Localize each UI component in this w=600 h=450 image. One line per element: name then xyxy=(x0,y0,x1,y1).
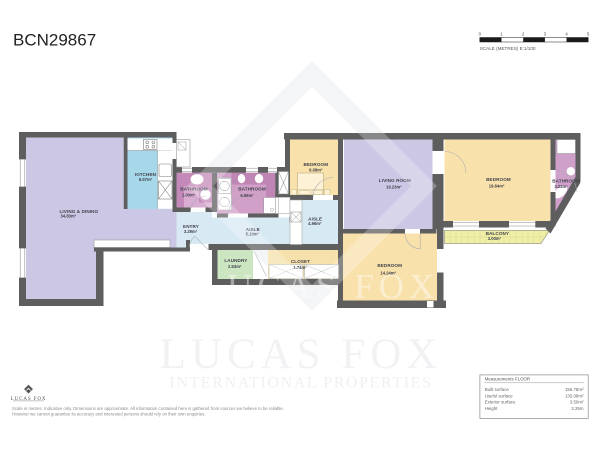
svg-text:Exterior surface: Exterior surface xyxy=(485,400,516,405)
svg-text:1.00m²: 1.00m² xyxy=(182,192,196,197)
svg-text:19.23m²: 19.23m² xyxy=(386,184,402,189)
svg-text:3.25m: 3.25m xyxy=(571,406,584,411)
svg-text:Measurements FLOOR: Measurements FLOOR xyxy=(485,377,530,382)
svg-text:8.57m²: 8.57m² xyxy=(139,177,153,182)
svg-text:Built surface: Built surface xyxy=(485,387,510,392)
svg-text:BEDROOM: BEDROOM xyxy=(486,177,511,182)
svg-text:Useful surface: Useful surface xyxy=(485,393,514,398)
svg-text:BEDROOM: BEDROOM xyxy=(303,162,328,167)
svg-text:LAUNDRY: LAUNDRY xyxy=(224,258,247,263)
svg-text:6.09m²: 6.09m² xyxy=(240,193,254,198)
svg-text:BATHROOM: BATHROOM xyxy=(238,187,266,192)
svg-text:3.29m²: 3.29m² xyxy=(184,229,198,234)
svg-text:4.96m²: 4.96m² xyxy=(308,221,322,226)
svg-text:LUCAS FOX: LUCAS FOX xyxy=(160,331,443,378)
svg-text:6.08m²: 6.08m² xyxy=(309,167,323,172)
svg-text:34.83m²: 34.83m² xyxy=(61,214,77,219)
svg-text:CLOSET: CLOSET xyxy=(291,259,310,264)
svg-text:156.78m²: 156.78m² xyxy=(565,387,584,392)
svg-text:However we cannot guarantee it: However we cannot guarantee its accuracy… xyxy=(12,412,205,417)
svg-text:3.23m²: 3.23m² xyxy=(554,184,568,189)
svg-text:3.00m²: 3.00m² xyxy=(488,236,502,241)
svg-text:Scale in metres. Indicative on: Scale in metres. Indicative only. Dimens… xyxy=(12,406,284,411)
svg-text:SCALE (METRES) E:1/100: SCALE (METRES) E:1/100 xyxy=(480,46,536,51)
svg-text:BCN29867: BCN29867 xyxy=(13,31,96,50)
svg-text:Height: Height xyxy=(485,406,498,411)
svg-text:3.50m²: 3.50m² xyxy=(570,400,584,405)
svg-text:LUCAS FOX: LUCAS FOX xyxy=(201,267,440,306)
svg-text:135.08m²: 135.08m² xyxy=(565,393,584,398)
svg-text:INTERNATIONAL PROPERTIES: INTERNATIONAL PROPERTIES xyxy=(169,375,432,392)
svg-text:19.64m²: 19.64m² xyxy=(489,183,505,188)
svg-text:BATHROOM: BATHROOM xyxy=(552,179,580,184)
